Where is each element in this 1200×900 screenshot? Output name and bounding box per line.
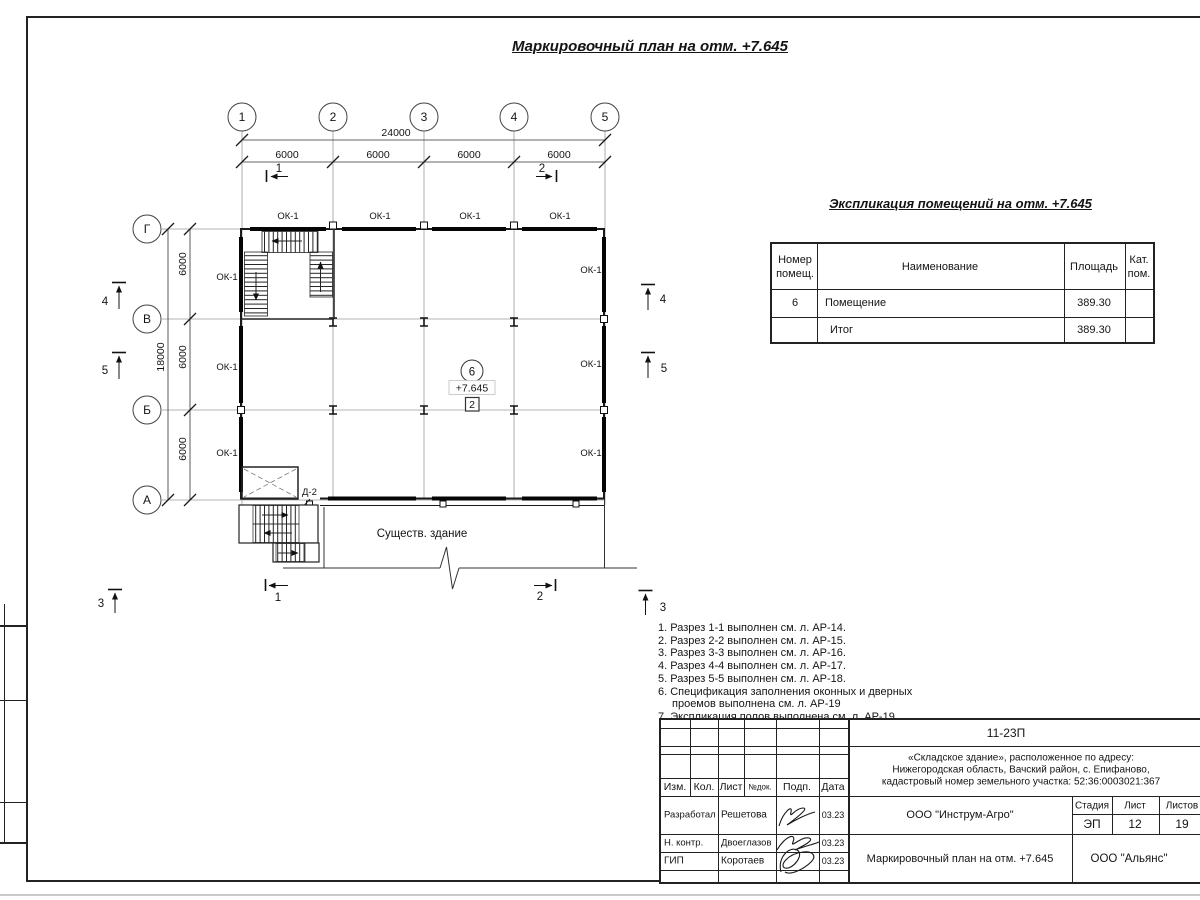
level-mark: 2 bbox=[469, 399, 475, 411]
section-number: 1 bbox=[275, 592, 281, 604]
section-number: 1 bbox=[276, 163, 282, 175]
window-mark: ОК-1 bbox=[580, 448, 601, 459]
window-mark: ОК-1 bbox=[216, 362, 237, 373]
dimension-labels: 24000 6000 6000 6000 6000 18000 6000 600… bbox=[155, 127, 571, 461]
explication-title: Экспликация помещений на отм. +7.645 bbox=[768, 196, 1153, 211]
explication-title-text: Экспликация помещений на отм. +7.645 bbox=[829, 196, 1092, 211]
stamp-role-developer: Разработал bbox=[664, 810, 716, 821]
section-number: 3 bbox=[98, 598, 104, 610]
stamp-date-ncontrol: 03.23 bbox=[822, 838, 845, 848]
note-line: 6. Спецификация заполнения оконных и две… bbox=[658, 686, 998, 699]
dim-total-horizontal: 24000 bbox=[381, 127, 410, 139]
dim-span: 6000 bbox=[275, 149, 299, 161]
total-name-cell: Итог bbox=[830, 324, 853, 336]
stamp-designer-org: ООО "Инструм-Агро" bbox=[906, 809, 1013, 821]
exterior-stair bbox=[239, 505, 319, 562]
stamp-name-developer: Решетова bbox=[721, 810, 767, 821]
section-number: 4 bbox=[660, 294, 667, 306]
stamp-list-value: 12 bbox=[1128, 817, 1141, 831]
section-number: 5 bbox=[661, 363, 667, 375]
stamp-date-developer: 03.23 bbox=[822, 810, 845, 820]
col-header-cat2: пом. bbox=[1128, 268, 1151, 280]
stamp-stage-label: Стадия bbox=[1075, 801, 1109, 812]
stamp-listov-label: Листов bbox=[1166, 801, 1199, 812]
stamp-name-gip: Коротаев bbox=[721, 856, 764, 867]
note-line: 5. Разрез 5-5 выполнен см. л. АР-18. bbox=[658, 673, 998, 686]
col-header-num2: помещ. bbox=[776, 268, 814, 280]
stamp-doc-number: 11-23П bbox=[987, 726, 1025, 740]
axis-label: 2 bbox=[330, 110, 337, 124]
stamp-list-label: Лист bbox=[1124, 801, 1146, 812]
stamp-object-line1: «Складское здание», расположенное по адр… bbox=[908, 753, 1134, 764]
section-number: 4 bbox=[102, 296, 109, 308]
total-area-cell: 389.30 bbox=[1077, 324, 1111, 336]
walls bbox=[240, 229, 605, 506]
stamp-listov-value: 19 bbox=[1175, 817, 1188, 831]
window-mark: ОК-1 bbox=[580, 265, 601, 276]
axis-label: 3 bbox=[421, 110, 428, 124]
stamp-col-data: Дата bbox=[821, 781, 844, 793]
elevation-mark: +7.645 bbox=[456, 383, 489, 395]
window-mark: ОК-1 bbox=[277, 211, 298, 222]
note-line: проемов выполнена см. л. АР-19 bbox=[658, 698, 998, 711]
room-tag: 6 +7.645 2 bbox=[449, 360, 495, 411]
dim-span: 6000 bbox=[457, 149, 481, 161]
axis-bubbles bbox=[133, 103, 619, 514]
dim-span: 6000 bbox=[177, 437, 189, 461]
axis-label: Б bbox=[143, 403, 151, 417]
room-number: 6 bbox=[469, 367, 475, 379]
axis-label: А bbox=[143, 493, 151, 507]
stamp-col-list: Лист bbox=[720, 781, 743, 793]
section-number: 3 bbox=[660, 602, 666, 614]
dim-total-vertical: 18000 bbox=[155, 342, 167, 371]
room-num-cell: 6 bbox=[792, 297, 798, 309]
title-block: Изм. Кол. Лист №док. Подп. Дата Разработ… bbox=[659, 718, 1200, 884]
notes-list: 1. Разрез 1-1 выполнен см. л. АР-14. 2. … bbox=[658, 622, 998, 724]
col-header-num: Номер bbox=[778, 254, 812, 266]
stamp-object-line3: кадастровый номер земельного участка: 52… bbox=[882, 777, 1160, 788]
existing-building bbox=[283, 499, 637, 589]
dim-span: 6000 bbox=[366, 149, 390, 161]
stamp-col-izm: Изм. bbox=[664, 781, 687, 793]
stamp-org: ООО "Альянс" bbox=[1091, 853, 1168, 865]
axis-label: Г bbox=[144, 222, 151, 236]
dim-span: 6000 bbox=[547, 149, 571, 161]
dim-span: 6000 bbox=[177, 345, 189, 369]
window-mark: ОК-1 bbox=[216, 448, 237, 459]
dim-span: 6000 bbox=[177, 252, 189, 276]
explication-table: Номер помещ. Наименование Площадь Кат. п… bbox=[770, 242, 1155, 344]
stamp-stage-value: ЭП bbox=[1083, 817, 1100, 831]
stamp-role-ncontrol: Н. контр. bbox=[664, 838, 703, 849]
axis-label: 1 bbox=[239, 110, 246, 124]
note-line: 4. Разрез 4-4 выполнен см. л. АР-17. bbox=[658, 660, 998, 673]
door-label: Д-2 bbox=[302, 487, 317, 498]
room-area-cell: 389.30 bbox=[1077, 297, 1111, 309]
section-number: 2 bbox=[537, 591, 543, 603]
axis-label: 4 bbox=[511, 110, 518, 124]
window-mark: ОК-1 bbox=[549, 211, 570, 222]
signatures bbox=[773, 798, 825, 882]
axis-label: В bbox=[143, 312, 151, 326]
window-mark: ОК-1 bbox=[369, 211, 390, 222]
pilasters bbox=[238, 222, 608, 507]
stairwell bbox=[240, 229, 334, 319]
window-mark: ОК-1 bbox=[216, 272, 237, 283]
stamp-col-podp: Подп. bbox=[783, 781, 811, 793]
col-header-cat: Кат. bbox=[1129, 254, 1148, 266]
existing-building-label: Существ. здание bbox=[377, 528, 468, 540]
col-header-name: Наименование bbox=[902, 261, 978, 273]
section-number: 2 bbox=[539, 163, 545, 175]
axis-label: 5 bbox=[602, 110, 609, 124]
stamp-col-kol: Кол. bbox=[694, 781, 715, 793]
stamp-name-ncontrol: Двоеглазов bbox=[721, 838, 772, 849]
shaft-room bbox=[242, 467, 298, 499]
stamp-object-line2: Нижегородская область, Вачский район, с.… bbox=[892, 765, 1149, 776]
col-header-area: Площадь bbox=[1070, 261, 1118, 273]
room-name-cell: Помещение bbox=[825, 297, 886, 309]
section-number: 5 bbox=[102, 365, 108, 377]
dimension-lines bbox=[168, 140, 605, 500]
note-line: 1. Разрез 1-1 выполнен см. л. АР-14. bbox=[658, 622, 998, 635]
stamp-role-gip: ГИП bbox=[664, 856, 684, 867]
note-line: 3. Разрез 3-3 выполнен см. л. АР-16. bbox=[658, 647, 998, 660]
stamp-date-gip: 03.23 bbox=[822, 856, 845, 866]
window-mark: ОК-1 bbox=[459, 211, 480, 222]
columns bbox=[329, 318, 518, 414]
stamp-col-ndok: №док. bbox=[748, 783, 771, 792]
note-line: 2. Разрез 2-2 выполнен см. л. АР-15. bbox=[658, 635, 998, 648]
stamp-drawing-title: Маркировочный план на отм. +7.645 bbox=[867, 853, 1054, 865]
window-mark: ОК-1 bbox=[580, 359, 601, 370]
